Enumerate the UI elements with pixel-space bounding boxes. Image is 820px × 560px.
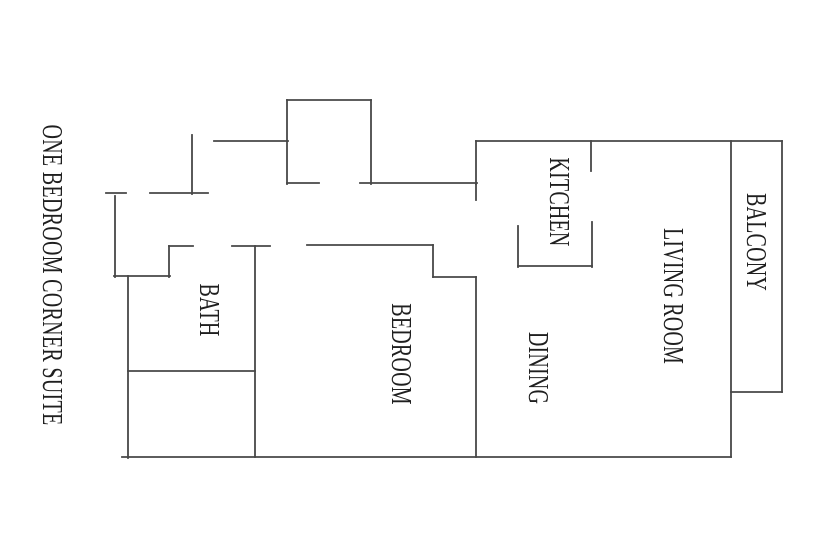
floorplan-walls-layer [0, 0, 820, 560]
room-label-dining: DINING [520, 332, 553, 404]
room-label-living-room: LIVING ROOM [655, 228, 688, 364]
room-label-bedroom: BEDROOM [383, 303, 416, 404]
floorplan-canvas: ONE BEDROOM CORNER SUITEBATHBEDROOMDININ… [0, 0, 820, 560]
room-label-bath: BATH [191, 283, 224, 336]
suite-title: ONE BEDROOM CORNER SUITE [34, 124, 67, 425]
room-label-kitchen: KITCHEN [541, 157, 574, 246]
room-label-balcony: BALCONY [738, 193, 771, 291]
